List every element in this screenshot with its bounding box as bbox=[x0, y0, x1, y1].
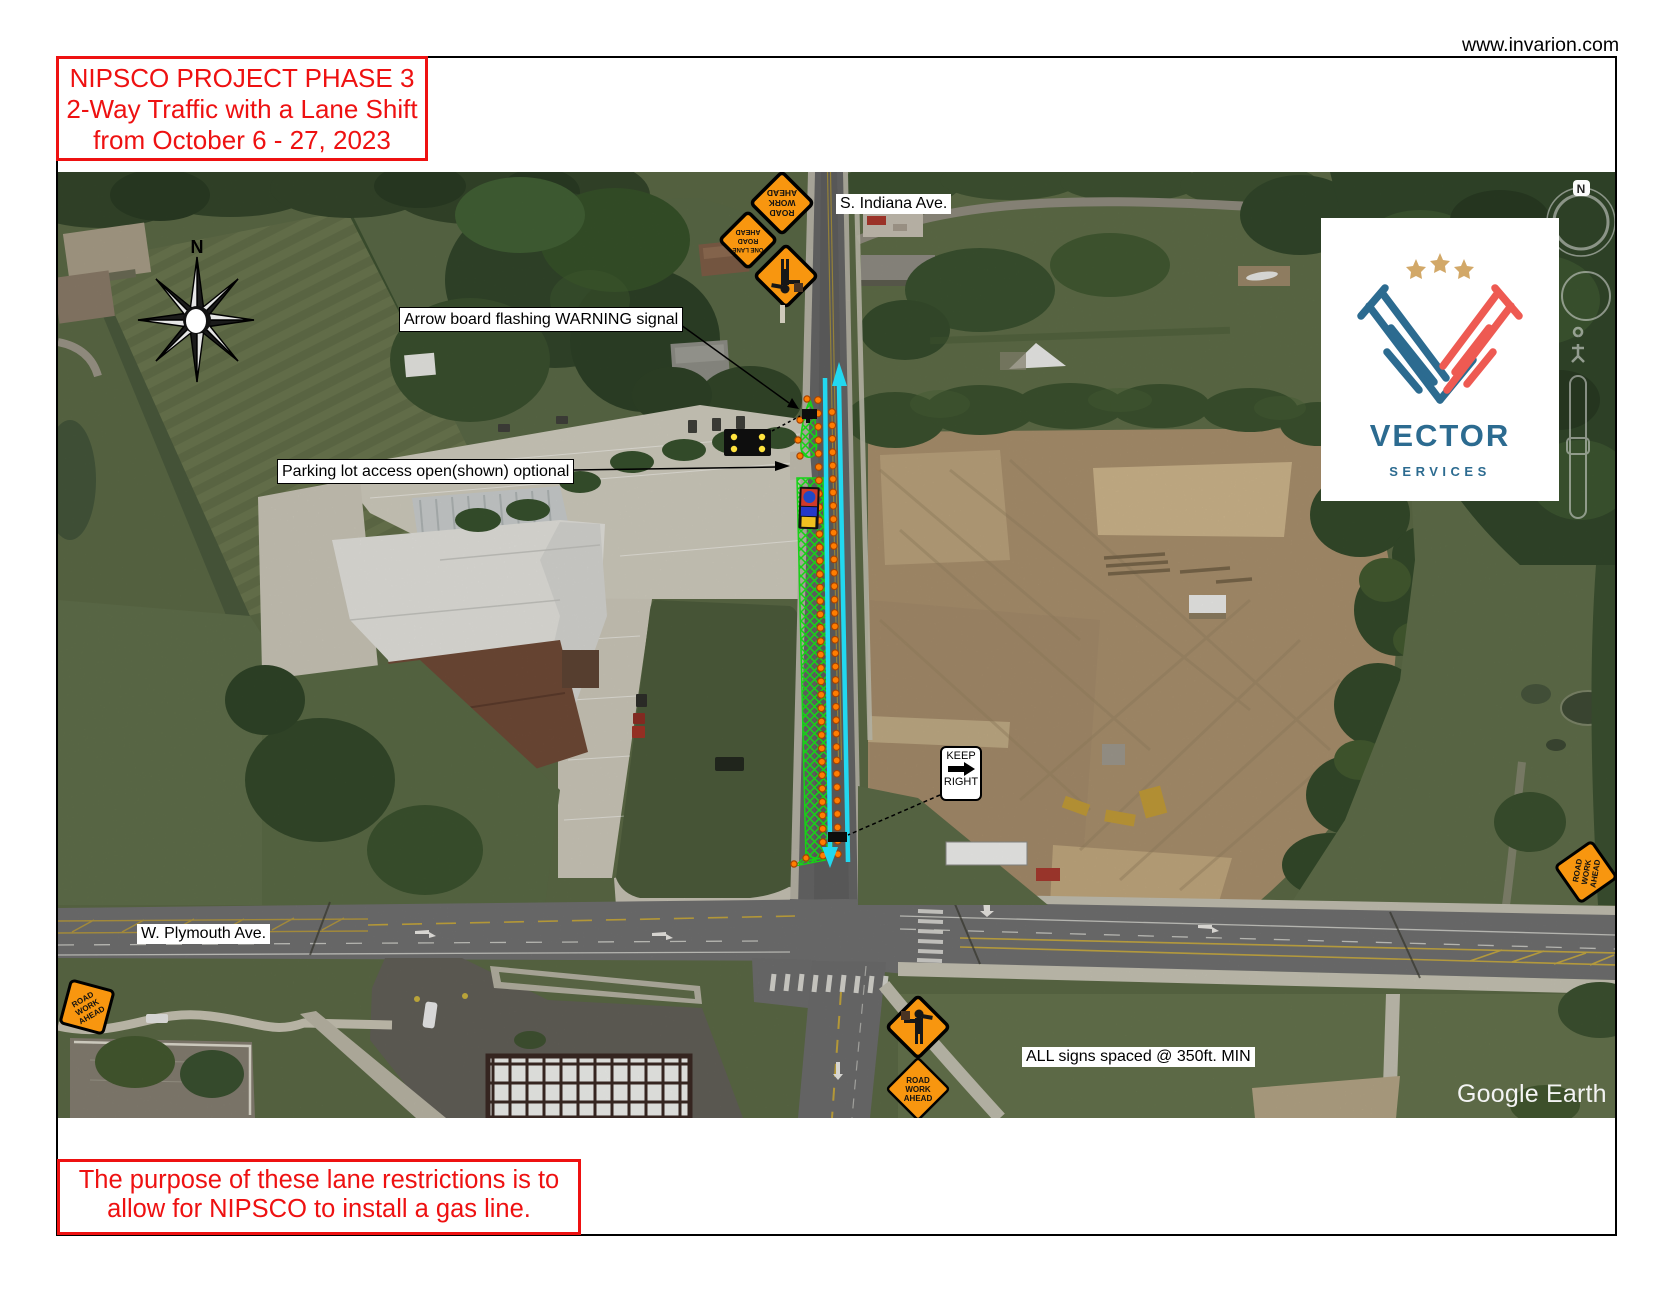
svg-text:AHEAD: AHEAD bbox=[736, 228, 761, 235]
svg-text:AHEAD: AHEAD bbox=[904, 1094, 933, 1103]
svg-text:ROAD: ROAD bbox=[738, 237, 759, 244]
svg-text:VECTOR: VECTOR bbox=[1370, 418, 1511, 453]
svg-text:WORK: WORK bbox=[768, 198, 796, 208]
svg-text:ONE LANE: ONE LANE bbox=[732, 246, 763, 252]
svg-text:N: N bbox=[191, 237, 204, 257]
svg-text:N: N bbox=[1577, 182, 1586, 196]
svg-text:SERVICES: SERVICES bbox=[1389, 464, 1491, 479]
svg-text:ROAD: ROAD bbox=[906, 1076, 930, 1085]
svg-text:AHEAD: AHEAD bbox=[767, 188, 797, 198]
svg-text:ROAD: ROAD bbox=[769, 208, 794, 218]
svg-text:WORK: WORK bbox=[905, 1085, 931, 1094]
